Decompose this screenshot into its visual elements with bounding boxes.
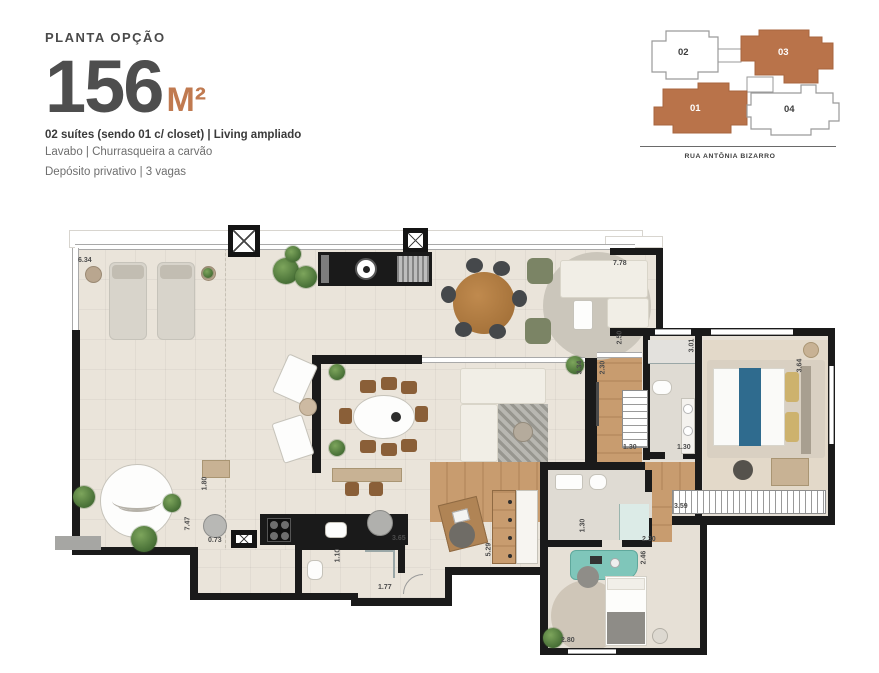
dim-kitchen: 3.65 xyxy=(392,535,406,542)
column-x-mark xyxy=(408,233,423,248)
dim-hall2: 5.29 xyxy=(485,543,492,557)
bbq-rack xyxy=(397,256,429,282)
burner xyxy=(281,521,289,529)
potted-plant xyxy=(203,268,213,278)
entry-bottom-wall xyxy=(351,598,451,606)
suite2-bath-right-wall-a xyxy=(645,470,652,492)
suite2-left-wall xyxy=(540,462,548,655)
master-right-window xyxy=(829,366,834,444)
burner xyxy=(270,521,278,529)
left-outer-wall xyxy=(72,330,80,555)
master-chair xyxy=(733,460,753,480)
corridor-door-band xyxy=(597,352,642,358)
tv-screen xyxy=(596,382,599,426)
suite2-bottom-wall xyxy=(540,648,707,655)
living-right-wall xyxy=(656,248,663,336)
table-bowl xyxy=(391,412,401,422)
dining2-chair xyxy=(381,377,397,390)
terrace-window-band xyxy=(75,244,635,250)
lavabo-left-wall xyxy=(295,545,302,600)
dim-terrace-top: 6.34 xyxy=(78,257,92,264)
dim-suite2-bath-width: 2.30 xyxy=(642,536,656,543)
area-value: 156 xyxy=(45,54,162,119)
nightstand xyxy=(803,342,819,358)
lounger-pillow-1 xyxy=(112,265,144,279)
living-sofa-top xyxy=(560,260,648,298)
burner xyxy=(270,532,278,540)
desk-chair xyxy=(449,522,475,548)
master-closet xyxy=(672,490,826,514)
keyplan-street-line xyxy=(640,146,836,147)
lavabo-right-wall xyxy=(398,545,405,573)
living2-sofa-side xyxy=(460,404,498,462)
dim-master-depth: 3.64 xyxy=(796,359,803,373)
keyplan-street-label: RUA ANTÔNIA BIZARRO xyxy=(610,153,850,160)
suite2-right-wall xyxy=(700,516,707,655)
suite2-plant xyxy=(543,628,563,648)
daybed-detail-2 xyxy=(118,500,156,512)
suite2-bath-bottom-wall-a xyxy=(548,540,602,547)
keyplan-svg xyxy=(610,20,850,170)
master-tv-console xyxy=(771,458,809,486)
bed-pillow-2 xyxy=(785,412,799,442)
sideboard-stool-1 xyxy=(345,482,359,496)
wing-bottom-wall xyxy=(672,516,835,525)
cabinet-knob xyxy=(508,500,512,504)
dining2-chair xyxy=(415,406,428,422)
dim-pantry: 1.80 xyxy=(201,477,208,491)
dining-chair xyxy=(466,258,483,273)
dining-chair xyxy=(441,286,456,303)
terrace-plant-2 xyxy=(295,266,317,288)
lavabo-toilet xyxy=(307,560,323,580)
master-bath-right-wall xyxy=(695,336,702,516)
floorplan-page: PLANTA OPÇÃO 156 M² 02 suítes (sendo 01 … xyxy=(0,0,879,673)
master-toilet xyxy=(652,380,672,395)
dining-chair xyxy=(455,322,472,337)
terrace-plant-5 xyxy=(131,526,157,552)
shower-glass-v xyxy=(393,550,395,578)
dim-column: 0.73 xyxy=(208,537,222,544)
dining2-chair xyxy=(401,439,417,452)
sideboard-stool-2 xyxy=(369,482,383,496)
dim-master-bath-width: 1.30 xyxy=(677,444,691,451)
shower-glass-h xyxy=(365,550,395,552)
keyplan-unit-02-label: 02 xyxy=(678,47,689,58)
dining2-chair xyxy=(360,380,376,393)
plan-kicker: PLANTA OPÇÃO xyxy=(45,30,465,45)
pantry-shelf xyxy=(202,460,230,478)
dining2-chair xyxy=(360,440,376,453)
column-x-mark xyxy=(233,230,255,252)
dim-master-closet: 3.59 xyxy=(674,503,688,510)
water-heater xyxy=(203,514,227,538)
cabinet-knob xyxy=(508,518,512,522)
dim-terrace-left: 7.47 xyxy=(184,517,191,531)
dining-top-wall xyxy=(312,355,422,364)
suite-entry-wood xyxy=(645,462,700,490)
terrace-plant-6 xyxy=(163,494,181,512)
kitchen-bottom-wall xyxy=(190,593,358,600)
bed-runner xyxy=(739,368,761,446)
dining2-chair xyxy=(401,381,417,394)
terrace-mat xyxy=(55,536,101,550)
vanity-sink-2 xyxy=(683,426,693,436)
suite2-chair xyxy=(577,566,599,588)
green-armchair-2 xyxy=(525,318,551,344)
suite2-window xyxy=(568,649,616,654)
dining-plant-2 xyxy=(329,440,345,456)
bed-pillow-1 xyxy=(785,372,799,402)
cabinet-knob xyxy=(508,536,512,540)
vanity-sink-1 xyxy=(683,404,693,414)
dining-chair xyxy=(489,324,506,339)
roof-projection-line xyxy=(225,248,226,548)
features-line1: 02 suítes (sendo 01 c/ closet) | Living … xyxy=(45,129,465,141)
keyplan-unit-01-label: 01 xyxy=(690,103,701,114)
terrace-plant-4 xyxy=(73,486,95,508)
dining-pass-window xyxy=(422,357,585,363)
dining2-chair xyxy=(381,443,397,456)
suite2-desk-laptop xyxy=(590,556,602,564)
suite2-vanity xyxy=(555,474,583,490)
sideboard xyxy=(332,468,402,482)
green-armchair-1 xyxy=(527,258,553,284)
suite2-side-table xyxy=(652,628,668,644)
terrace-side-table-1 xyxy=(85,266,102,283)
features-line2: Lavabo | Churrasqueira a carvão xyxy=(45,144,465,161)
bbq-side-panel xyxy=(321,255,329,283)
living-coffee-table xyxy=(573,300,593,330)
dining-chair xyxy=(512,290,527,307)
dim-living-side: 3.34 xyxy=(576,361,583,375)
keyplan-unit-04-label: 04 xyxy=(784,104,795,115)
suite2-top-wall xyxy=(548,462,645,470)
master-bath-window xyxy=(655,329,691,335)
terrace-side-table-3 xyxy=(299,398,317,416)
features-line3: Depósito privativo | 3 vagas xyxy=(45,164,465,181)
suite2-blanket xyxy=(607,612,645,644)
area-row: 156 M² xyxy=(45,47,465,119)
storage-cabinet xyxy=(492,490,516,564)
suite2-desk-plate xyxy=(610,558,620,568)
keyplan-core-bottom xyxy=(747,77,773,92)
bbq-grill-center xyxy=(363,266,370,273)
cabinet-knob xyxy=(508,554,512,558)
dim-suite2-depth: 2.46 xyxy=(640,551,647,565)
dim-hall-closet: 1.30 xyxy=(623,444,637,451)
dining-plant-1 xyxy=(329,364,345,380)
dim-lavabo-depth: 1.10 xyxy=(334,549,341,563)
living-sofa-side xyxy=(607,298,649,328)
kitchen-column xyxy=(231,530,257,548)
storage-panel xyxy=(516,490,538,564)
suite2-toilet xyxy=(589,474,607,490)
hall-bottom-wall xyxy=(445,567,548,575)
dim-living-right: 2.50 xyxy=(616,331,623,345)
burner xyxy=(281,532,289,540)
suite2-pillow xyxy=(607,578,645,590)
structural-column-1 xyxy=(228,225,260,257)
master-bedroom-window xyxy=(711,329,793,335)
terrace-plant-3 xyxy=(285,246,301,262)
living2-pouf xyxy=(513,422,533,442)
column-x-mark xyxy=(236,535,252,543)
dim-lavabo-width: 1.77 xyxy=(378,584,392,591)
bed-headboard xyxy=(801,366,811,454)
lounger-pillow-2 xyxy=(160,265,192,279)
keyplan: 02 03 01 04 RUA ANTÔNIA BIZARRO xyxy=(610,20,850,170)
oval-dining-table xyxy=(353,395,415,439)
floor-plan: 6.34 7.78 2.50 3.01 2.30 3.34 3.64 1.30 … xyxy=(45,200,845,673)
header: PLANTA OPÇÃO 156 M² 02 suítes (sendo 01 … xyxy=(45,30,465,180)
suite2-shower xyxy=(619,504,649,540)
dining2-chair xyxy=(339,408,352,424)
kitchen-sink xyxy=(325,522,347,538)
dim-living-top: 7.78 xyxy=(613,260,627,267)
dining-chair xyxy=(493,261,510,276)
dim-suite2-width: 2.80 xyxy=(561,637,575,644)
dim-master-bath-depth: 3.01 xyxy=(688,339,695,353)
hall-closet xyxy=(622,390,648,448)
entry-side-wall xyxy=(445,567,452,606)
living2-sofa-top xyxy=(460,368,546,404)
trash-cylinder xyxy=(367,510,393,536)
keyplan-unit-03-label: 03 xyxy=(778,47,789,58)
dim-hall-depth: 2.30 xyxy=(599,361,606,375)
dim-suite2-bath-depth: 1.30 xyxy=(579,519,586,533)
master-bath-bottom-wall-a xyxy=(643,452,665,459)
structural-column-2 xyxy=(403,228,428,253)
area-unit: M² xyxy=(166,82,206,119)
